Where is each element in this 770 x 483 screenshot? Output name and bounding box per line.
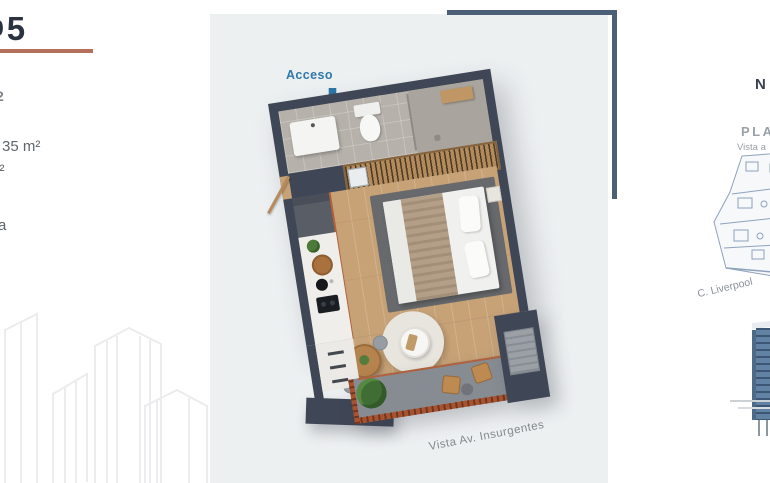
compass-north-label: N — [755, 76, 766, 93]
cutting-board — [310, 253, 334, 277]
page-title: 0 5 — [0, 12, 25, 45]
ac-unit — [504, 327, 541, 375]
cabinet-handle — [330, 364, 346, 369]
cooktop — [316, 294, 340, 313]
balcony-chair — [470, 361, 493, 384]
pillow — [463, 240, 490, 279]
title-prefix: 0 — [0, 15, 5, 42]
counter-plant — [306, 239, 321, 254]
burner-icon — [321, 301, 327, 307]
cabinet-handle — [332, 378, 348, 383]
title-underline — [0, 49, 93, 53]
balcony-plant — [354, 376, 388, 410]
tower-column — [766, 420, 768, 436]
kitchen-sink — [315, 278, 329, 292]
building-illustration — [752, 320, 770, 438]
level-text-fragment: 2 — [0, 88, 4, 104]
bed — [383, 186, 500, 304]
wardrobe-panel — [347, 166, 369, 188]
pillow — [458, 195, 481, 233]
faucet-icon — [311, 123, 316, 128]
ground-line — [730, 400, 770, 402]
interior-area-text: 35 m² — [2, 138, 40, 155]
corner-frame-right — [612, 10, 617, 199]
toilet-bowl — [358, 113, 382, 143]
burner-icon — [330, 300, 336, 306]
balcony-chair — [441, 375, 461, 395]
area-text-fragment: m² — [0, 162, 5, 179]
shower-drain — [434, 134, 441, 141]
buildings-watermark — [0, 286, 210, 483]
bathroom-sink — [289, 116, 340, 157]
nightstand — [486, 186, 502, 203]
ground-line — [738, 407, 770, 409]
corner-frame-top — [447, 10, 617, 15]
text-fragment-a: a — [0, 217, 6, 234]
key-plan-title: PLAN — [741, 124, 770, 139]
unit-walls — [268, 69, 529, 346]
key-plan-diagram — [712, 152, 770, 284]
refrigerator-top — [292, 192, 331, 206]
tower-column — [758, 420, 760, 436]
balcony-table — [460, 383, 474, 397]
kitchen-faucet — [329, 279, 334, 284]
table-plant — [359, 354, 370, 365]
brochure-page: 0 5 2 35 m² m² a Acceso — [0, 0, 770, 483]
cabinet-handle — [328, 350, 344, 355]
title-number: 5 — [7, 12, 25, 45]
access-label: Acceso — [286, 68, 333, 82]
